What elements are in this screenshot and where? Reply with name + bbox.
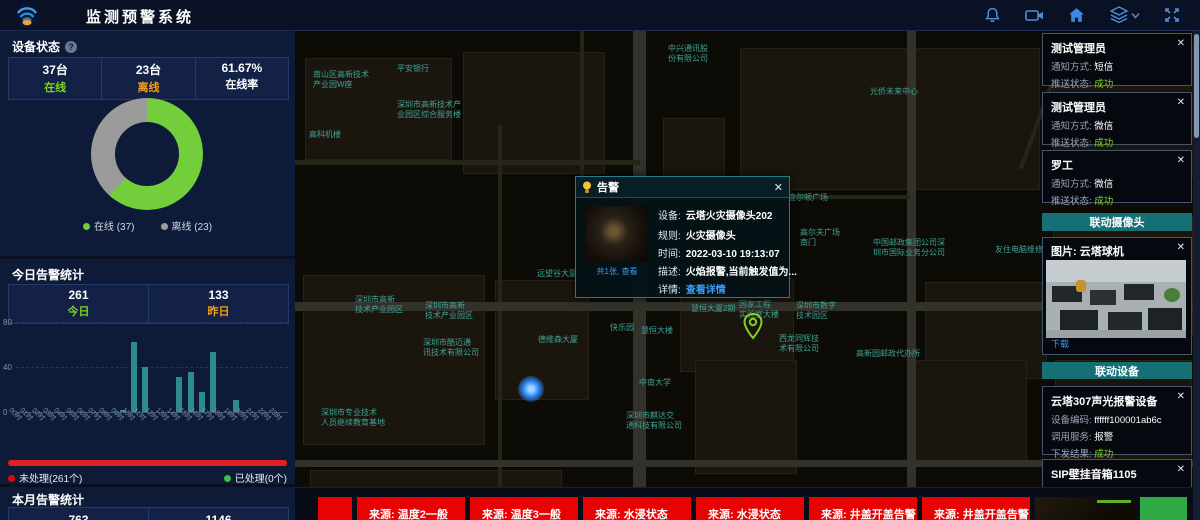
map-label: 高科机楼 xyxy=(309,130,341,140)
alert-popup-title: 告警 xyxy=(597,179,619,195)
map-label: 中国邮政集团公司深 圳市国际业务分公司 xyxy=(873,238,945,258)
app-logo-icon xyxy=(14,2,40,28)
map-pin-icon[interactable] xyxy=(743,313,763,340)
stat-month: 763 xyxy=(9,508,149,520)
alert-ticker-item[interactable]: 来源: 温度2一般 xyxy=(357,497,465,520)
donut-legend: 在线 (37) 离线 (23) xyxy=(0,218,295,233)
device-card-title: SIP壁挂音箱1105 xyxy=(1051,466,1183,482)
left-stats-panel: 设备状态? 37台 在线 23台 离线 61.67% 在线率 在线 (37) 离… xyxy=(0,30,295,520)
map-label: 德维森大厦 xyxy=(538,335,578,345)
alert-popup: 告警 ✕ 共1张, 查看 设备:云塔火灾摄像头202 规则:火灾摄像头 时间:2… xyxy=(575,176,790,298)
map-label: 慧恒大厦2期 xyxy=(691,304,735,314)
linked-device-card: ✕ 云塔307声光报警设备 设备编码: ffffff100001ab6c 调用服… xyxy=(1042,386,1192,455)
map-road xyxy=(580,30,584,190)
legend-offline: 离线 (23) xyxy=(161,218,213,233)
map-building xyxy=(695,360,797,474)
green-dot-icon xyxy=(224,475,231,482)
device-status-title: 设备状态? xyxy=(12,38,77,55)
map-label: 深圳市高新 技术产业园区 xyxy=(355,295,403,315)
notify-status: 推送状态: 成功 xyxy=(1051,193,1183,207)
help-icon[interactable]: ? xyxy=(65,41,77,53)
notify-name: 罗工 xyxy=(1051,157,1183,173)
stat-offline: 23台 离线 xyxy=(102,58,195,99)
x-tick-label: 23时 xyxy=(266,406,284,424)
device-field: 设备编码: ffffff100001ab6c xyxy=(1051,412,1183,426)
notification-card: ✕ 罗工 通知方式: 微信 推送状态: 成功 xyxy=(1042,150,1192,203)
photo-monitor xyxy=(1108,312,1142,331)
y-tick-label: 40 xyxy=(3,363,12,372)
alert-ticker-item[interactable]: 来源: 水浸状态 xyxy=(583,497,691,520)
close-icon[interactable]: ✕ xyxy=(1177,242,1185,253)
gray-dot-icon xyxy=(161,223,168,230)
popup-field-desc: 描述:火焰报警,当前触发值为... xyxy=(658,263,797,278)
photo-monitor xyxy=(1060,310,1098,330)
map-label: 南山区高新技术 产业园W座 xyxy=(313,70,369,90)
processed-legend: 未处理(261个) 已处理(0个) xyxy=(8,470,287,485)
green-dot-icon xyxy=(83,223,90,230)
photo-area xyxy=(1046,260,1186,282)
photo-person xyxy=(1076,280,1086,292)
red-dot-icon xyxy=(8,475,15,482)
map-label: 深圳市高新技术产 业园区综合服务楼 xyxy=(397,100,461,120)
notify-method: 通知方式: 短信 xyxy=(1051,59,1183,73)
legend-online: 在线 (37) xyxy=(83,218,135,233)
month-alerts-stats: 763 1146 xyxy=(8,507,289,520)
map-label: 远望谷大厦 xyxy=(537,269,577,279)
map-road xyxy=(295,160,640,165)
map-label: 高新园邮政代办所 xyxy=(856,349,920,359)
video-camera-icon[interactable] xyxy=(1024,5,1044,25)
map-label: 深圳市酷迈通 讯技术有限公司 xyxy=(423,338,479,358)
bar xyxy=(142,367,148,412)
device-location-dot[interactable] xyxy=(518,376,544,402)
hourly-alert-bar-chart: 0408000时01时02时03时04时05时06时07时08时09时10时11… xyxy=(0,318,295,450)
today-alerts-title: 今日告警统计 xyxy=(12,266,84,283)
view-details-link[interactable]: 查看详情 xyxy=(686,285,726,296)
map-label: 快乐园 xyxy=(610,323,634,333)
map-label: 光侨未来中心 xyxy=(870,87,918,97)
ticker-green-frame[interactable] xyxy=(1140,497,1187,520)
notification-card: ✕ 测试管理员 通知方式: 微信 推送状态: 成功 xyxy=(1042,92,1192,145)
popup-field-detail: 详情:查看详情 xyxy=(658,281,726,296)
chevron-down-icon xyxy=(1131,12,1140,19)
close-icon[interactable]: ✕ xyxy=(1177,464,1185,475)
map-building xyxy=(740,48,1040,190)
map-label: 高尔夫广场 南门 xyxy=(800,228,840,248)
map-road xyxy=(907,30,916,520)
alert-ticker-item[interactable]: 来源: 井盖开盖告警 xyxy=(809,497,917,520)
map-label: 友住电脑维修 xyxy=(995,245,1043,255)
map-label: 中兴通讯股 份有限公司 xyxy=(668,44,708,64)
stat-online-rate: 61.67% 在线率 xyxy=(196,58,288,99)
popup-field-rule: 规则:火灾摄像头 xyxy=(658,227,736,242)
device-field: 下发结果: 成功 xyxy=(1051,446,1183,460)
alert-ticker: 来源: 温度2一般来源: 温度3一般来源: 水浸状态来源: 水浸状态来源: 井盖… xyxy=(318,497,1187,520)
close-icon[interactable]: ✕ xyxy=(1177,391,1185,402)
alert-ticker-item[interactable]: 来源: 井盖开盖告警 xyxy=(922,497,1030,520)
device-field: 调用服务: 报警 xyxy=(1051,429,1183,443)
stat-prev-month: 1146 xyxy=(149,508,288,520)
notification-card: ✕ 测试管理员 通知方式: 短信 推送状态: 成功 xyxy=(1042,33,1192,86)
close-icon[interactable]: ✕ xyxy=(1177,155,1185,166)
y-tick-label: 80 xyxy=(3,318,12,327)
photo-monitor xyxy=(1148,308,1182,330)
notify-status: 推送状态: 成功 xyxy=(1051,76,1183,90)
divider xyxy=(0,256,295,259)
popup-field-device: 设备:云塔火灾摄像头202 xyxy=(658,207,772,222)
map-label: 查尔顿广场 xyxy=(788,193,828,203)
header-toolbar xyxy=(982,3,1182,27)
donut-hole xyxy=(115,122,179,186)
notify-name: 测试管理员 xyxy=(1051,99,1183,115)
device-status-stats: 37台 在线 23台 离线 61.67% 在线率 xyxy=(8,57,289,100)
download-link[interactable]: 下载 xyxy=(1051,337,1069,350)
ticker-snapshot[interactable] xyxy=(1035,497,1135,520)
map-label: 深圳市麒达交 通科技有限公司 xyxy=(626,411,682,431)
alert-popup-header: 告警 ✕ xyxy=(576,177,789,198)
app-root: 监测预警系统 设备状态? xyxy=(0,0,1200,520)
alert-snapshot[interactable] xyxy=(586,206,648,262)
notify-name: 测试管理员 xyxy=(1051,40,1183,56)
camera-card-title: 图片: 云塔球机 xyxy=(1051,243,1191,259)
page-title: 监测预警系统 xyxy=(86,6,194,27)
divider xyxy=(0,484,295,487)
bar xyxy=(210,352,216,412)
map-label: 深圳市高新 技术产业园区 xyxy=(425,301,473,321)
scrollbar-thumb[interactable] xyxy=(1194,34,1199,138)
unhandled-progress-track xyxy=(8,460,287,466)
photo-monitor xyxy=(1124,284,1154,300)
top-header: 监测预警系统 xyxy=(0,0,1200,31)
legend-handled: 已处理(0个) xyxy=(224,470,287,485)
photo-plant xyxy=(1164,288,1180,302)
photo-monitor xyxy=(1090,290,1116,305)
legend-unhandled: 未处理(261个) xyxy=(8,470,82,485)
notify-status: 推送状态: 成功 xyxy=(1051,135,1183,149)
alert-ticker-strip: 来源: 温度2一般来源: 温度3一般来源: 水浸状态来源: 水浸状态来源: 井盖… xyxy=(295,487,1200,520)
notification-bell-icon[interactable] xyxy=(982,5,1002,25)
map-label: 西龙同辉技 术有限公司 xyxy=(779,334,819,354)
gridline xyxy=(16,322,288,323)
alert-ticker-stub[interactable] xyxy=(318,497,352,520)
alert-ticker-item[interactable]: 来源: 温度3一般 xyxy=(470,497,578,520)
notify-method: 通知方式: 微信 xyxy=(1051,176,1183,190)
alert-snapshot-caption[interactable]: 共1张, 查看 xyxy=(586,266,648,277)
layers-icon[interactable] xyxy=(1108,5,1140,25)
device-card-title: 云塔307声光报警设备 xyxy=(1051,393,1183,409)
map-building xyxy=(913,360,1027,462)
map-label: 深圳市数字 技术园区 xyxy=(796,301,836,321)
month-alerts-title: 本月告警统计 xyxy=(12,491,84,508)
device-donut xyxy=(91,98,203,210)
map-label: 中南大学 xyxy=(639,378,671,388)
bar xyxy=(131,342,137,412)
close-icon[interactable]: ✕ xyxy=(1177,97,1185,108)
alert-ticker-item[interactable]: 来源: 水浸状态 xyxy=(696,497,804,520)
map-label: 深圳市专业技术 人员继续教育基地 xyxy=(321,408,385,428)
home-icon[interactable] xyxy=(1066,5,1086,25)
unhandled-progress-bar xyxy=(8,460,287,466)
map-label: 慧恒大楼 xyxy=(641,326,673,336)
fullscreen-icon[interactable] xyxy=(1162,5,1182,25)
linked-camera-header: 联动摄像头 xyxy=(1042,213,1192,231)
camera-snapshot[interactable] xyxy=(1046,260,1186,338)
popup-field-time: 时间:2022-03-10 19:13:07 xyxy=(658,245,780,260)
map-label: 平安银行 xyxy=(397,64,429,74)
linked-devices-header: 联动设备 xyxy=(1042,362,1192,379)
bulb-icon xyxy=(582,181,592,194)
close-icon[interactable]: ✕ xyxy=(1177,38,1185,49)
close-icon[interactable]: ✕ xyxy=(774,181,783,194)
notify-method: 通知方式: 微信 xyxy=(1051,118,1183,132)
stat-online: 37台 在线 xyxy=(9,58,102,99)
linked-camera-card: ✕ 图片: 云塔球机 下载 xyxy=(1042,237,1192,355)
gridline xyxy=(16,367,288,368)
